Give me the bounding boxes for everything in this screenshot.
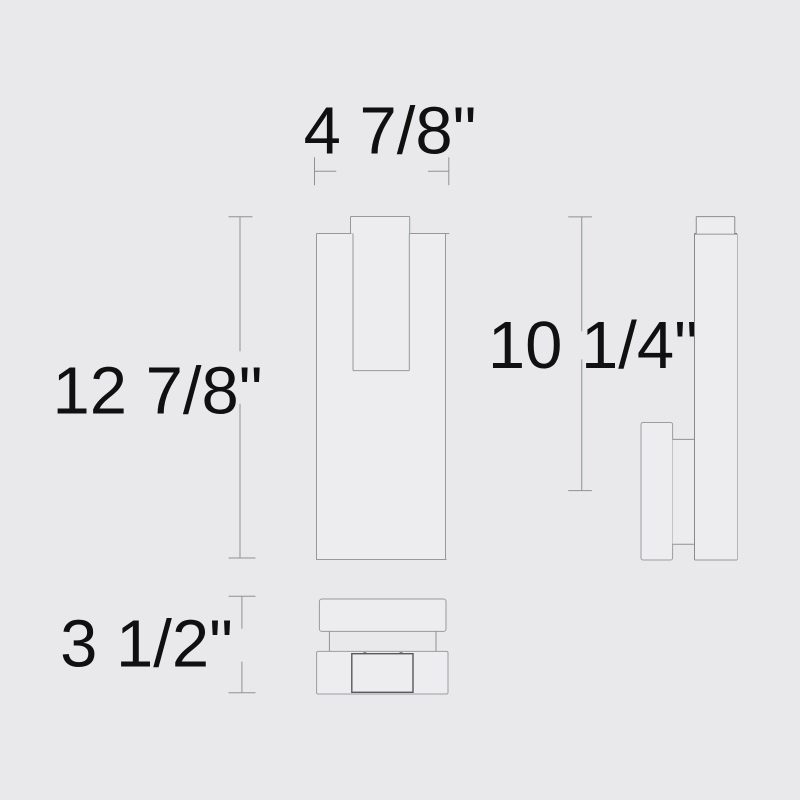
svg-text:4 7/8": 4 7/8"	[304, 94, 477, 169]
svg-text:10 1/4": 10 1/4"	[488, 308, 698, 383]
svg-text:3 1/2": 3 1/2"	[60, 607, 233, 682]
svg-text:12 7/8": 12 7/8"	[52, 354, 262, 429]
